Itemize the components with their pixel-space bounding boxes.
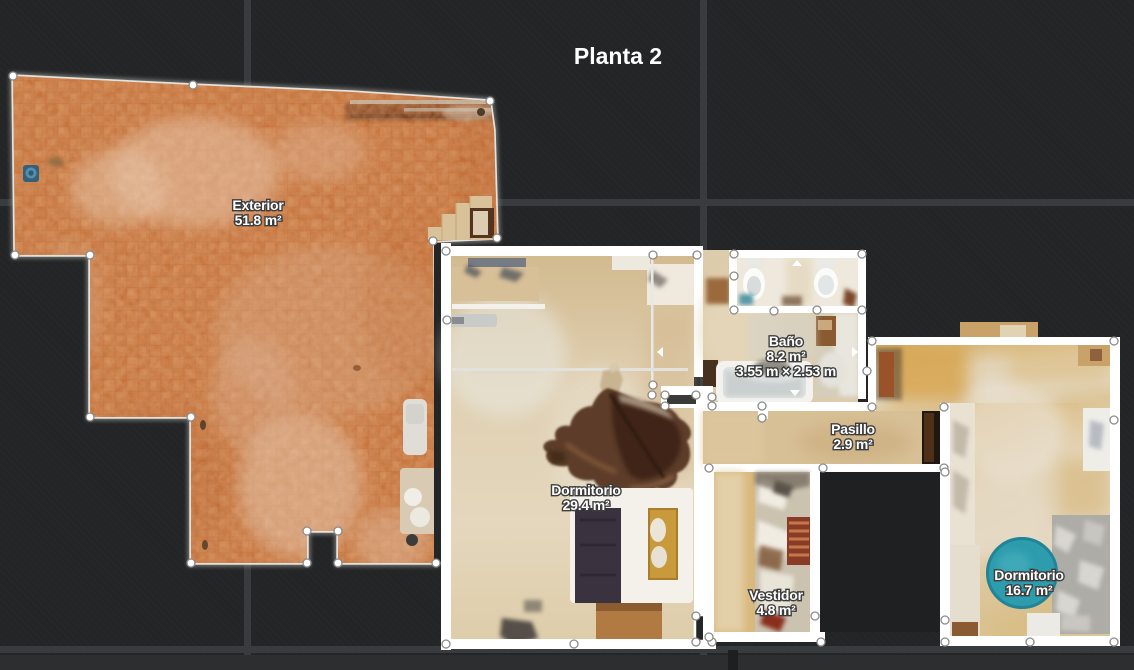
svg-text:Pasillo: Pasillo [831, 421, 875, 437]
svg-text:Planta 2: Planta 2 [574, 43, 662, 69]
svg-text:2.9 m²: 2.9 m² [833, 436, 873, 452]
svg-text:Dormitorio: Dormitorio [994, 567, 1064, 583]
svg-text:8.2 m²: 8.2 m² [766, 348, 806, 364]
svg-text:16.7 m²: 16.7 m² [1006, 582, 1053, 598]
svg-text:51.8 m²: 51.8 m² [235, 212, 282, 228]
svg-text:Baño: Baño [769, 333, 803, 349]
svg-text:Vestidor: Vestidor [749, 587, 803, 603]
svg-text:Dormitorio: Dormitorio [551, 482, 621, 498]
svg-text:3.55 m × 2.53 m: 3.55 m × 2.53 m [736, 363, 836, 379]
svg-text:4.8 m²: 4.8 m² [756, 602, 796, 618]
svg-text:Exterior: Exterior [232, 197, 284, 213]
svg-text:29.4 m²: 29.4 m² [563, 497, 610, 513]
